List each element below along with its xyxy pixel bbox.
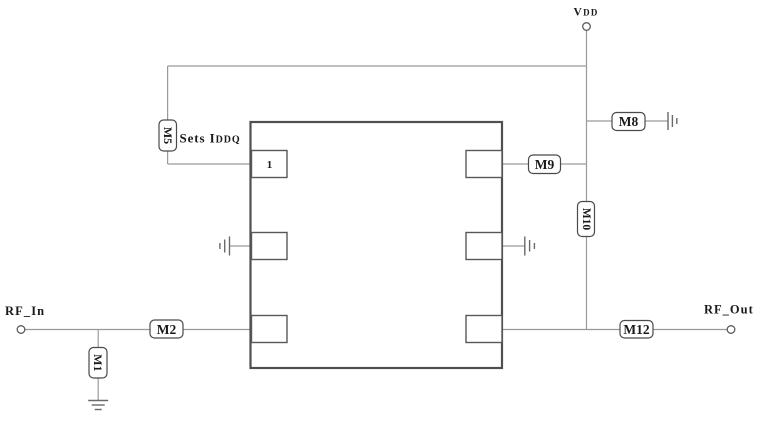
- svg-text:RF_In: RF_In: [5, 304, 45, 318]
- svg-text:RF_Out: RF_Out: [704, 303, 754, 317]
- svg-text:M10: M10: [580, 208, 592, 231]
- svg-text:M5: M5: [161, 127, 175, 144]
- svg-text:M1: M1: [91, 354, 105, 371]
- svg-text:M8: M8: [619, 114, 639, 129]
- svg-text:1: 1: [267, 159, 273, 171]
- svg-text:VDD: VDD: [574, 7, 599, 19]
- svg-text:M2: M2: [157, 322, 177, 337]
- svg-text:M9: M9: [535, 157, 555, 172]
- svg-text:M12: M12: [623, 322, 649, 337]
